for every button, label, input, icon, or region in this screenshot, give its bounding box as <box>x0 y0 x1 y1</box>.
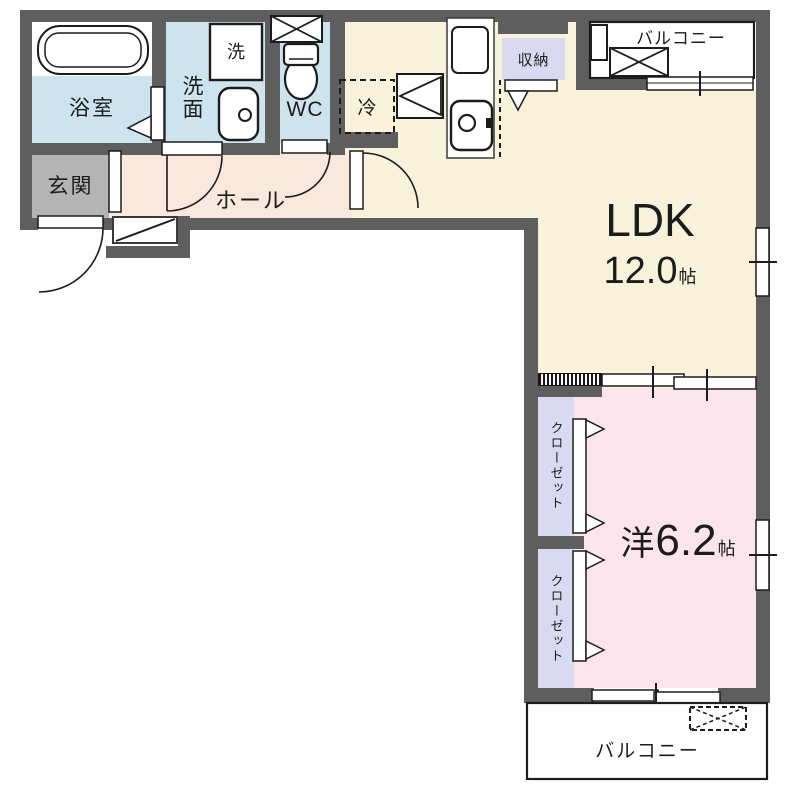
label-wc: WC <box>280 97 330 123</box>
label-balcony-north: バルコニー <box>608 25 754 47</box>
western-name: 洋 <box>620 516 654 565</box>
ldk-size-value: 12.0 <box>604 250 678 293</box>
front-door-icon <box>38 216 103 292</box>
label-hall: ホール <box>196 185 306 213</box>
label-washer: 洗 <box>210 38 262 64</box>
cupboard-box-icon <box>397 74 443 118</box>
label-western-room: 洋6.2帖 <box>600 516 756 568</box>
sliding-door-divider-icon <box>602 366 756 401</box>
label-refrigerator: 冷 <box>340 93 394 120</box>
label-ldk: LDK <box>560 196 740 244</box>
floor-plan-canvas: 浴室 洗面 洗 WC 玄関 ホール 冷 収納 バルコニー LDK 12.0帖 洋… <box>0 0 800 800</box>
western-size-unit: 帖 <box>718 535 736 561</box>
ldk-door-icon <box>350 151 418 209</box>
label-bathroom: 浴室 <box>42 93 142 121</box>
porch-step-line <box>116 219 175 241</box>
bathtub-icon <box>38 26 148 74</box>
label-washroom: 洗面 <box>179 50 203 146</box>
label-closet-lower: クローゼット <box>541 553 571 685</box>
wc-shelf-xbox-icon <box>271 16 322 42</box>
ldk-size-unit: 帖 <box>678 263 696 289</box>
label-ldk-size: 12.0帖 <box>555 250 745 294</box>
western-size-value: 6.2 <box>655 516 716 566</box>
label-balcony-south: バルコニー <box>570 736 725 762</box>
kitchen-counter-icon <box>447 18 500 158</box>
washstand-icon <box>219 88 258 140</box>
label-storage: 収納 <box>502 48 565 70</box>
label-closet-upper: クローゼット <box>541 400 571 532</box>
toilet-icon <box>284 44 318 99</box>
storage-door-icon <box>505 80 557 110</box>
window-ldk-east-icon <box>749 228 777 296</box>
label-entrance: 玄関 <box>32 171 109 199</box>
entrance-hall-door-icon <box>109 151 121 212</box>
